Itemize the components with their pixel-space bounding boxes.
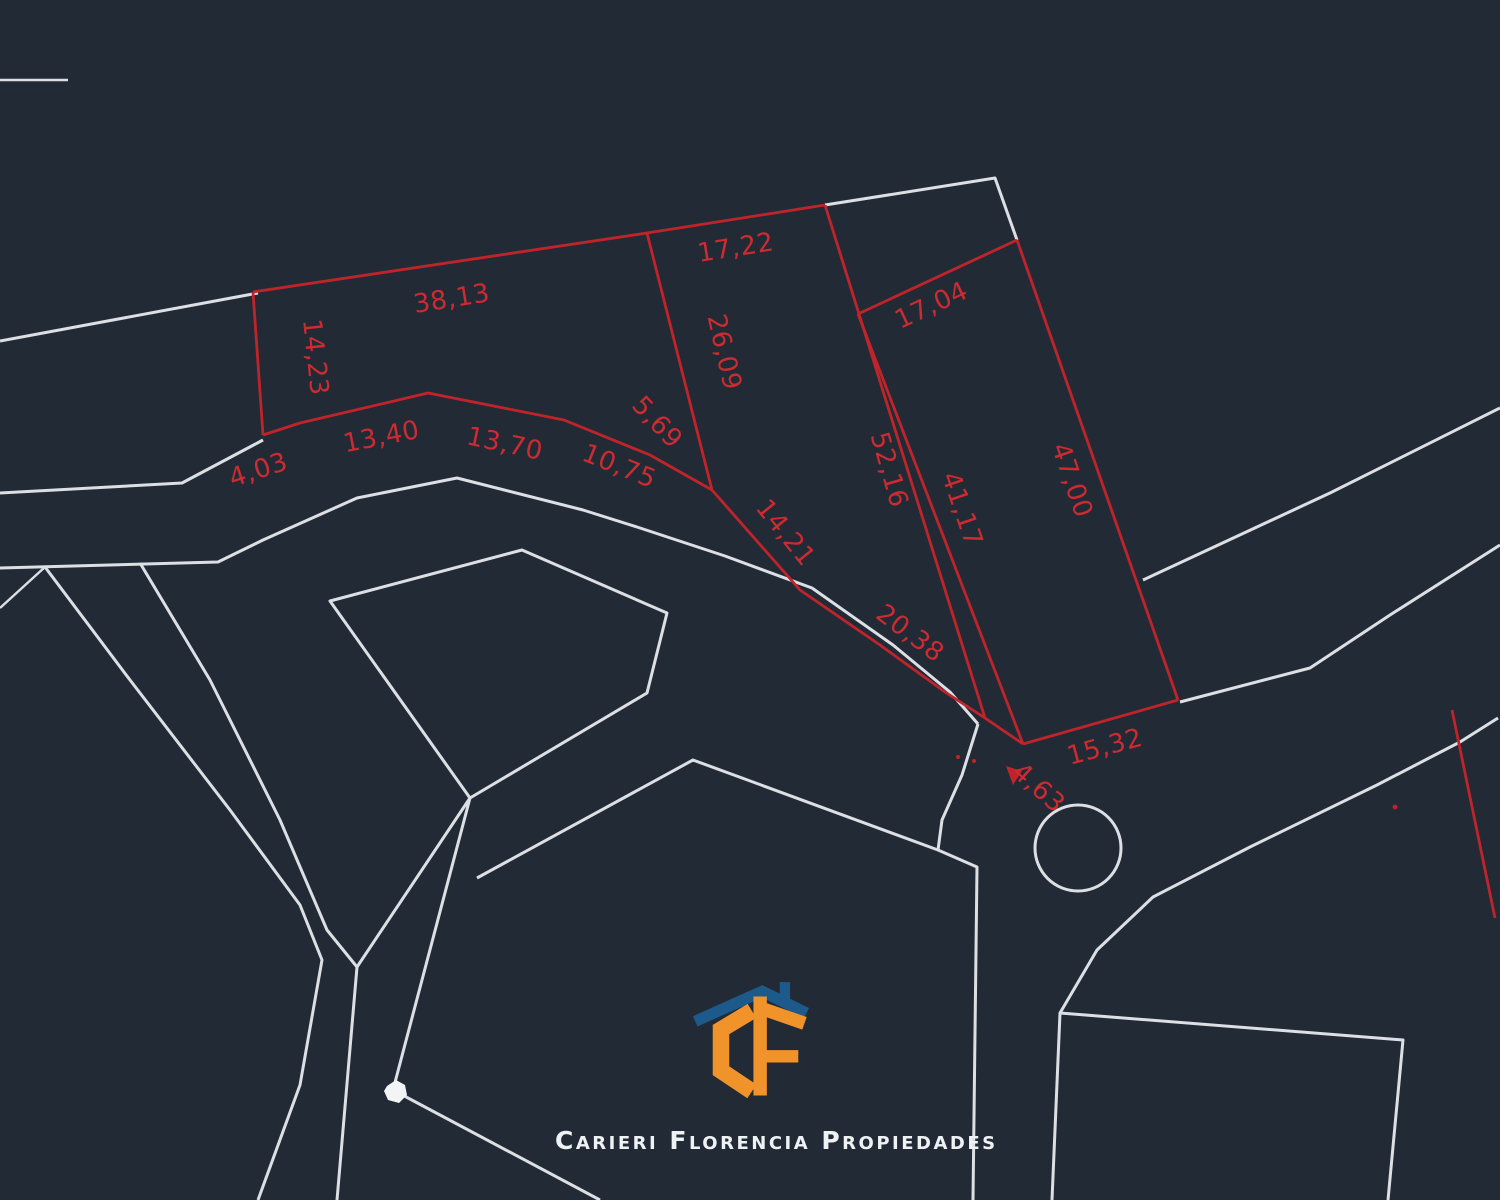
cf-monogram-icon: [693, 978, 817, 1112]
street-sweep-curve: [1060, 718, 1498, 1200]
roundabout-circle: [1035, 805, 1121, 891]
street-edge-line: [825, 178, 1017, 240]
parcel-boundary-line: [647, 233, 712, 490]
parcel-boundary-line: [1452, 710, 1495, 918]
dimension-label: 17,04: [890, 276, 972, 336]
dimension-label: 26,09: [701, 311, 748, 393]
parcel-divider-line: [337, 798, 470, 1200]
dimension-label: 13,70: [464, 422, 545, 467]
street-edge-spur: [0, 567, 45, 608]
dimension-label: 10,75: [578, 438, 661, 495]
street-edge-line: [0, 440, 263, 493]
dimension-label: 38,13: [411, 278, 492, 320]
plot-point: [972, 759, 976, 763]
street-edge-line: [140, 563, 357, 967]
dimension-label: 17,22: [695, 227, 776, 269]
dimension-label: 14,23: [296, 317, 334, 397]
company-name: Carieri Florencia Propiedades: [555, 1126, 955, 1155]
street-edge-line: [1143, 408, 1500, 580]
cad-plan-viewport: { "palette": { "background": "#222A35", …: [0, 0, 1500, 1200]
plot-point: [1393, 805, 1398, 810]
street-edge-line: [1180, 545, 1500, 702]
parcel-boundary-line: [253, 292, 263, 435]
dimension-label: 14,21: [749, 494, 821, 573]
survey-marker: [384, 1080, 407, 1103]
street-edge-line: [0, 478, 978, 724]
dimension-label: 13,40: [341, 415, 422, 459]
parcel-boundary-line: [1017, 240, 1178, 700]
dimension-labels: 38,1317,2214,2326,094,0313,4013,7010,755…: [225, 227, 1146, 819]
parcel-boundary-line: [712, 490, 985, 718]
plot-point: [956, 755, 960, 759]
street-edge-line: [45, 567, 322, 1200]
dimension-label: 5,69: [625, 390, 688, 454]
street-edge-line: [1052, 1013, 1060, 1200]
company-logo: Carieri Florencia Propiedades: [555, 978, 955, 1155]
letter-c-shape: [721, 1011, 752, 1091]
parcel-block-outline: [330, 550, 667, 798]
street-corner-arc: [938, 724, 978, 850]
street-edge-line: [0, 293, 258, 341]
parcel-boundary-line: [858, 314, 1023, 744]
